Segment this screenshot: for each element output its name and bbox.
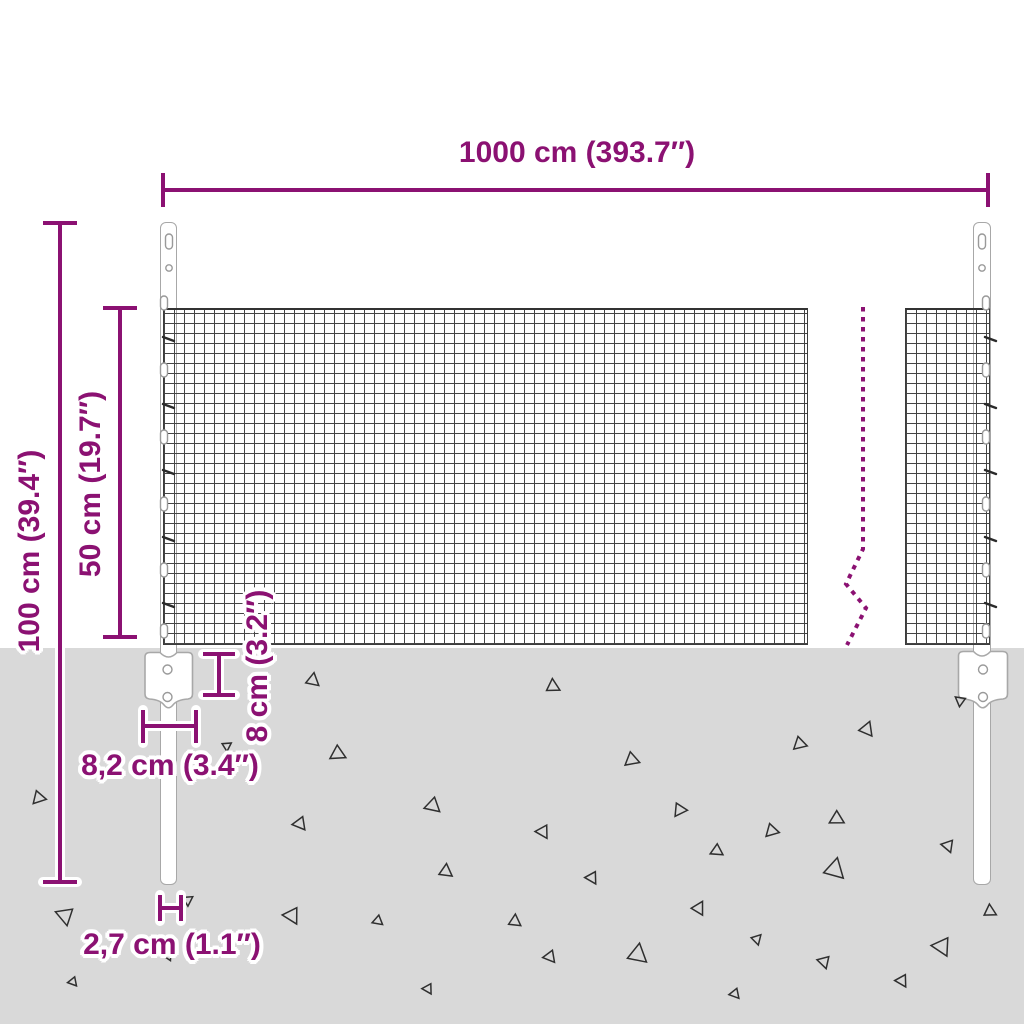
anchor-plate-right-hole-top: [979, 665, 988, 674]
plate-width-label: 8,2 cm (3.4″): [81, 749, 259, 783]
total-width-label: 1000 cm (393.7″): [459, 136, 695, 170]
anchor-plate-right-hole-bottom: [979, 693, 988, 702]
plate-height-label: 8 cm (3.2″): [241, 590, 275, 743]
post-right-details: [979, 234, 997, 638]
dimension-lines: [43, 173, 988, 921]
post-width-label: 2,7 cm (1.1″): [83, 928, 261, 962]
product-dimension-diagram: 1000 cm (393.7″) 100 cm (39.4″) 50 cm (1…: [0, 0, 1024, 1024]
anchor-plate-left-hole-top: [163, 665, 172, 674]
post-left-details: [161, 234, 175, 638]
total-height-label: 100 cm (39.4″): [13, 450, 47, 653]
length-break-dashed-line: [846, 307, 866, 645]
anchor-plate-left-hole-bottom: [163, 693, 172, 702]
mesh-height-label: 50 cm (19.7″): [74, 391, 108, 577]
